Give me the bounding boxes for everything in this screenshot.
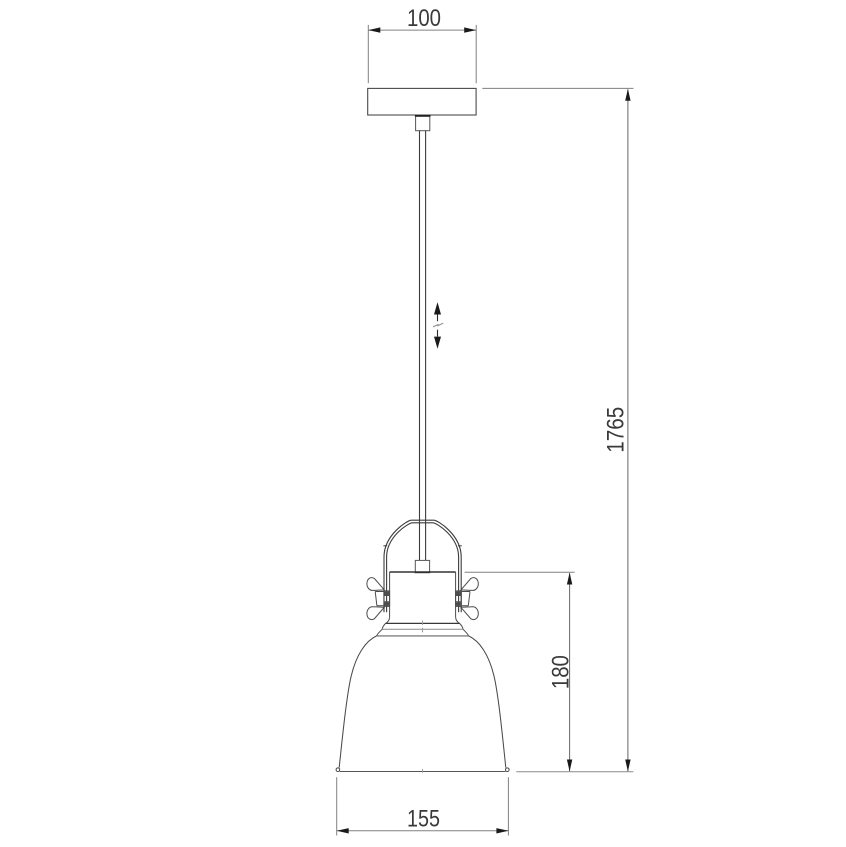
svg-text:100: 100 bbox=[407, 5, 441, 32]
svg-text:180: 180 bbox=[547, 655, 574, 689]
svg-text:155: 155 bbox=[407, 806, 440, 833]
svg-text:1765: 1765 bbox=[603, 407, 630, 453]
